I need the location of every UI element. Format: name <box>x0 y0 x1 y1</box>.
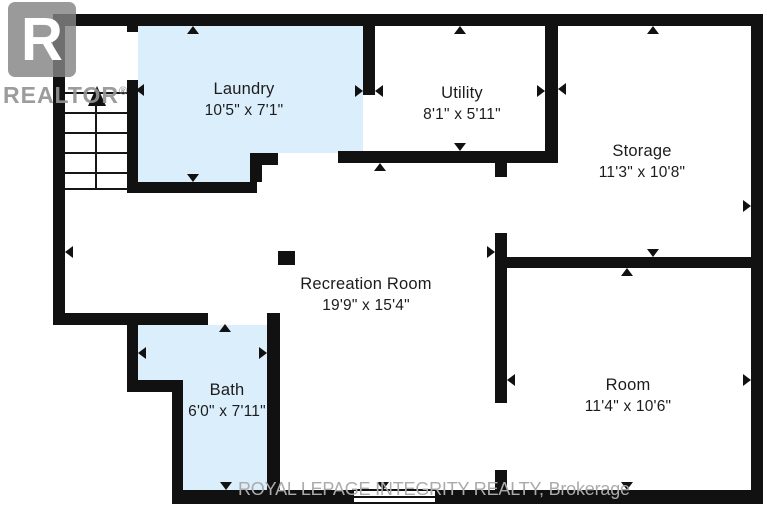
room-dimensions: 11'4" x 10'6" <box>585 398 671 416</box>
room-name: Recreation Room <box>300 275 431 294</box>
wall-bath-notch <box>127 380 183 392</box>
room-name: Bath <box>188 381 266 400</box>
brokerage-watermark: ROYAL LEPAGE INTEGRITY REALTY, Brokerage <box>238 479 630 500</box>
registered-trademark-symbol: ® <box>119 85 128 97</box>
wall-storage-room-divider <box>505 257 763 268</box>
realtor-logo: R REALTOR® <box>8 2 128 109</box>
room-dimensions: 11'3" x 10'8" <box>599 164 685 182</box>
wall-bath-left-upper <box>127 325 138 383</box>
dimension-arrow-right-icon <box>355 85 363 97</box>
room-name: Room <box>585 376 671 395</box>
dimension-arrow-down-icon <box>187 174 199 182</box>
wall-utility-bottom <box>338 151 557 163</box>
wall-rec-storage-stub <box>495 163 507 177</box>
dimension-arrow-right-icon <box>487 246 495 258</box>
dimension-arrow-left-icon <box>507 374 515 386</box>
room-dimensions: 8'1" x 5'11" <box>423 106 501 124</box>
room-dimensions: 10'5" x 7'1" <box>205 102 284 120</box>
wall-laundry-utility-divider <box>363 26 375 95</box>
wall-laundry-step <box>250 153 262 182</box>
dimension-arrow-left-icon <box>65 246 73 258</box>
room-dimensions: 19'9" x 15'4" <box>300 297 431 315</box>
realtor-logo-text: REALTOR® <box>3 82 128 109</box>
wall-top <box>53 14 763 26</box>
wall-laundry-step-stub <box>262 153 278 165</box>
dimension-arrow-up-icon <box>187 26 199 34</box>
wall-laundry-left-stub <box>127 26 138 32</box>
support-post <box>278 251 295 265</box>
recreation-room-label: Recreation Room 19'9" x 15'4" <box>300 275 431 315</box>
dimension-arrow-left-icon <box>375 85 383 97</box>
bath-label: Bath 6'0" x 7'11" <box>188 381 266 421</box>
dimension-arrow-left-icon <box>138 347 146 359</box>
wall-utility-storage-divider <box>545 26 558 163</box>
utility-label: Utility 8'1" x 5'11" <box>423 84 501 124</box>
realtor-logo-r-icon: R <box>21 9 63 70</box>
wall-bath-left-lower <box>172 392 183 490</box>
dimension-arrow-up-icon <box>621 268 633 276</box>
dimension-arrow-up-icon <box>219 324 231 332</box>
laundry-label: Laundry 10'5" x 7'1" <box>205 80 284 120</box>
dimension-arrow-up-icon <box>374 163 386 171</box>
wall-bath-right <box>267 313 280 490</box>
room-label: Room 11'4" x 10'6" <box>585 376 671 416</box>
dimension-arrow-left-icon <box>558 83 566 95</box>
wall-bath-top <box>53 313 208 325</box>
dimension-arrow-right-icon <box>537 85 545 97</box>
dimension-arrow-down-icon <box>220 482 232 490</box>
room-name: Laundry <box>205 80 284 99</box>
dimension-arrow-right-icon <box>743 374 751 386</box>
dimension-arrow-right-icon <box>259 347 267 359</box>
dimension-arrow-down-icon <box>454 143 466 151</box>
realtor-wordmark: REALTOR <box>3 82 119 108</box>
dimension-arrow-down-icon <box>647 249 659 257</box>
dimension-arrow-up-icon <box>647 26 659 34</box>
storage-label: Storage 11'3" x 10'8" <box>599 142 685 182</box>
dimension-arrow-up-icon <box>454 26 466 34</box>
room-dimensions: 6'0" x 7'11" <box>188 403 266 421</box>
room-name: Utility <box>423 84 501 103</box>
dimension-arrow-right-icon <box>743 200 751 212</box>
room-name: Storage <box>599 142 685 161</box>
wall-laundry-bottom <box>127 182 257 193</box>
realtor-logo-box: R <box>8 2 76 77</box>
dimension-arrow-left-icon <box>136 84 144 96</box>
floor-plan: Laundry 10'5" x 7'1" Utility 8'1" x 5'11… <box>0 0 767 511</box>
